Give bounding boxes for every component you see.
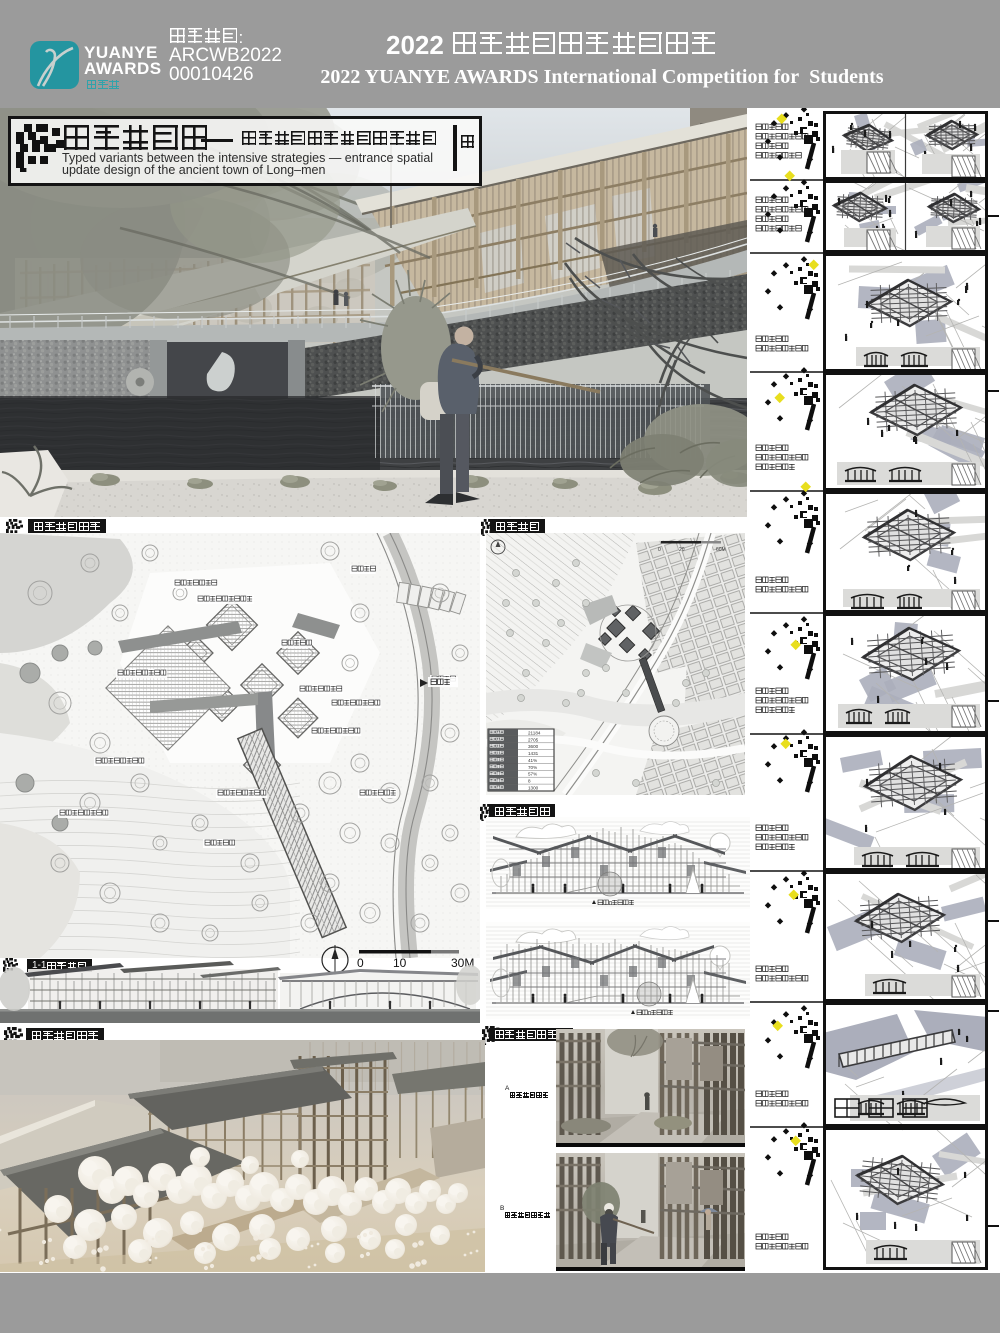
svg-text:N: N [330,942,337,945]
svg-text:2705: 2705 [528,737,539,742]
svg-text:41%: 41% [528,758,537,763]
svg-text:60M: 60M [716,547,726,553]
svg-text:0: 0 [658,547,661,553]
svg-text:70%: 70% [528,765,537,770]
svg-text:21184: 21184 [528,730,541,735]
svg-text:3600: 3600 [528,744,539,749]
svg-text:1300: 1300 [528,786,539,791]
svg-text:1431: 1431 [528,751,539,756]
svg-text:20: 20 [679,547,685,553]
svg-text:57%: 57% [528,772,537,777]
svg-text:8: 8 [528,779,531,784]
